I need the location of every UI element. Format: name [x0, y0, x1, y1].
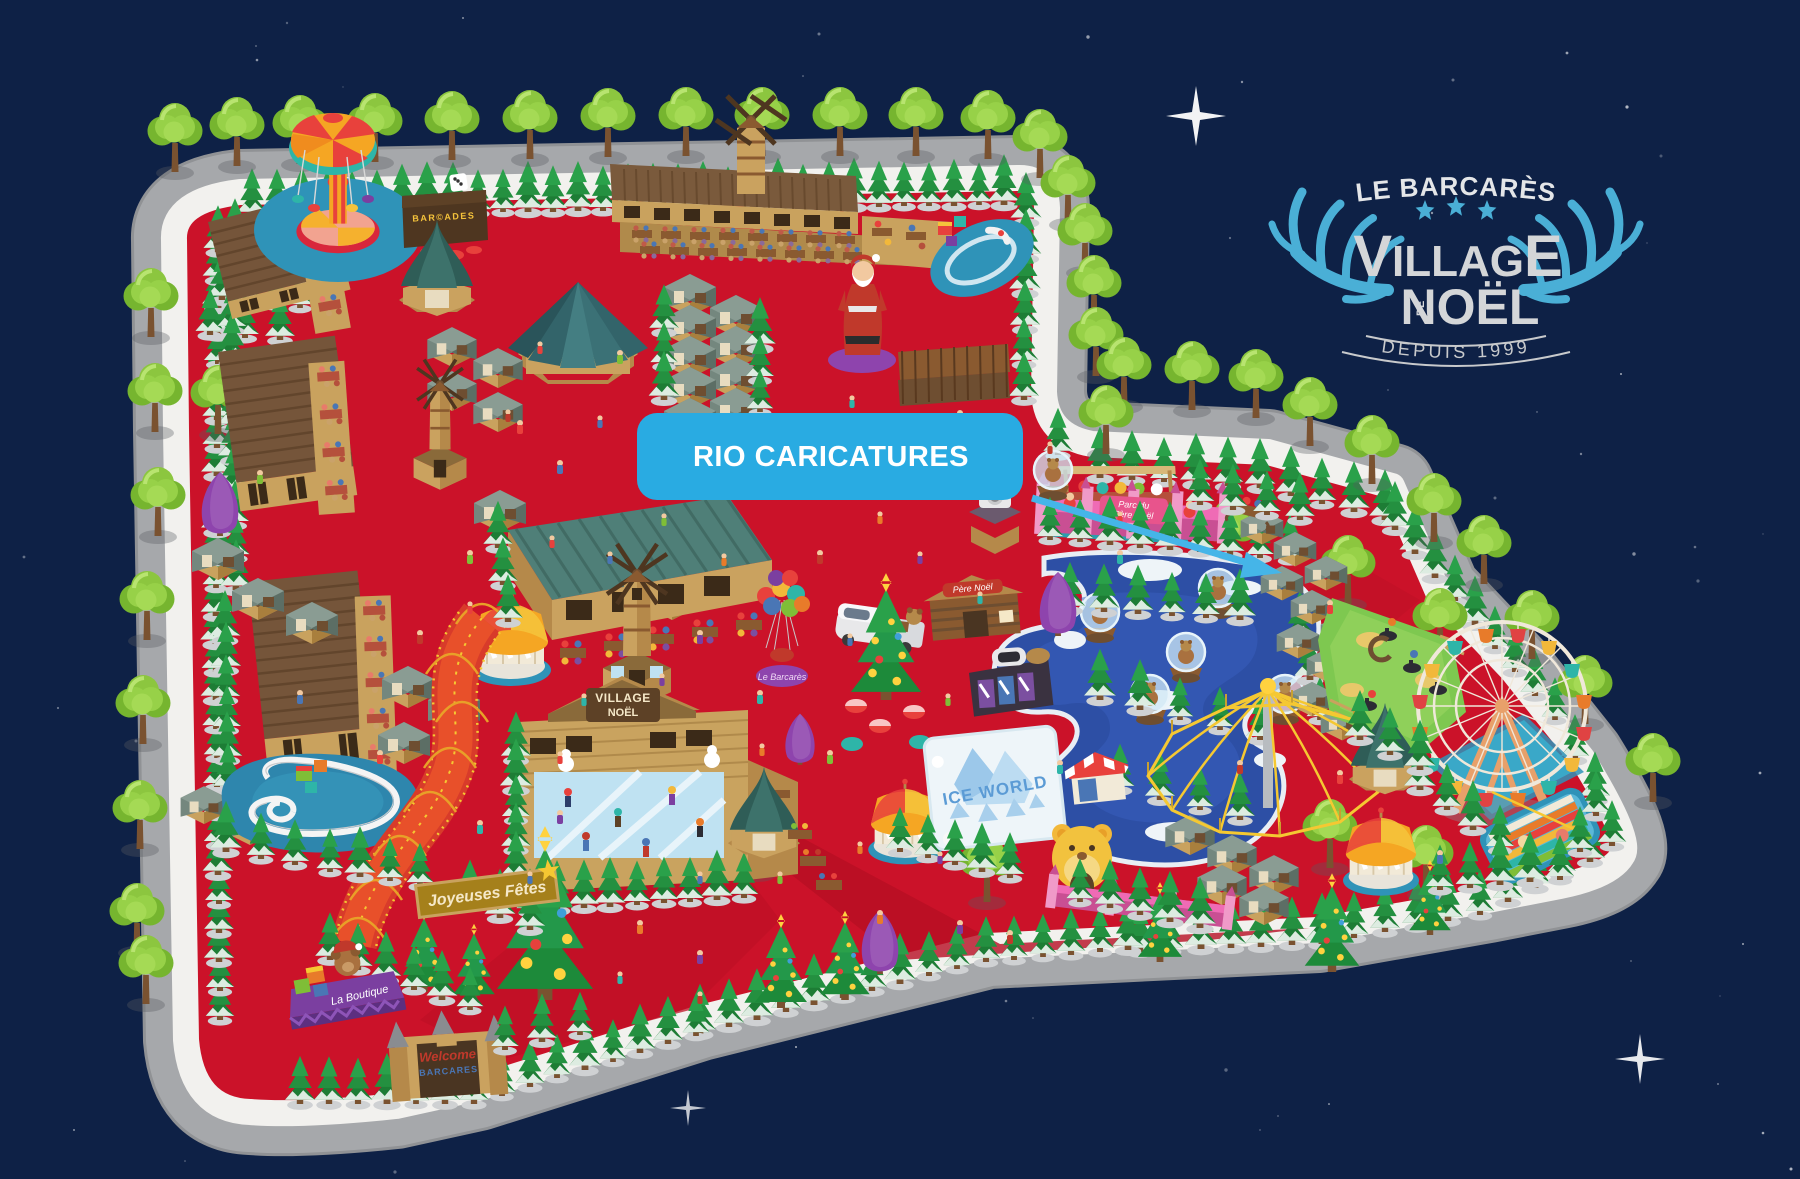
svg-text:NOËL: NOËL: [1401, 279, 1540, 335]
svg-text:VILLAGE: VILLAGE: [595, 691, 651, 705]
svg-text:Le Barcarès: Le Barcarès: [758, 672, 807, 682]
svg-text:NOËL: NOËL: [608, 706, 639, 719]
svg-text:RIO CARICATURES: RIO CARICATURES: [693, 441, 969, 473]
